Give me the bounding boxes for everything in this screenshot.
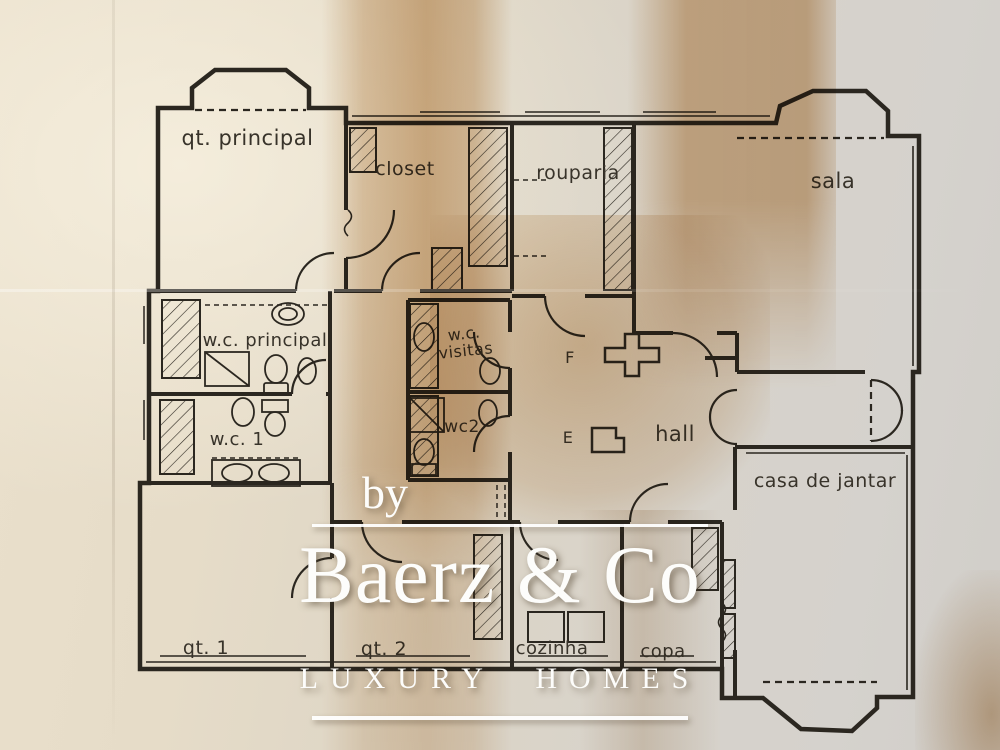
room-label-wc-principal: w.c. principal [190, 332, 340, 351]
room-label-qt-1: qt. 1 [170, 639, 242, 659]
annotation-f: F [560, 350, 580, 367]
watermark-prefix: by [345, 466, 425, 519]
watermark-brand: Baerz & Co [250, 528, 750, 622]
room-label-closet: closet [355, 160, 455, 180]
room-label-casa-de-jantar: casa de jantar [745, 472, 905, 492]
room-label-cozinha: cozinha [512, 640, 592, 659]
watermark-divider-bottom [312, 716, 688, 720]
room-label-copa: copa [633, 643, 693, 662]
room-label-wc-1: w.c. 1 [192, 431, 282, 450]
room-label-qt-2: qt. 2 [348, 640, 420, 660]
room-label-wc-visitas: w.c. visitas [431, 323, 498, 363]
room-label-rouparia: rouparia [528, 164, 628, 184]
room-label-wc-2: wc2 [432, 419, 492, 437]
room-label-sala: sala [788, 170, 878, 192]
annotation-e: E [558, 430, 578, 447]
scanned-floor-plan: qt. principal closet rouparia sala w.c. … [0, 0, 1000, 750]
floor-plan-drawing [0, 0, 1000, 750]
room-label-qt-principal: qt. principal [165, 127, 330, 149]
watermark-divider-top [312, 524, 708, 527]
watermark-tagline: LUXURY HOMES [280, 662, 720, 696]
room-label-hall: hall [640, 423, 710, 445]
